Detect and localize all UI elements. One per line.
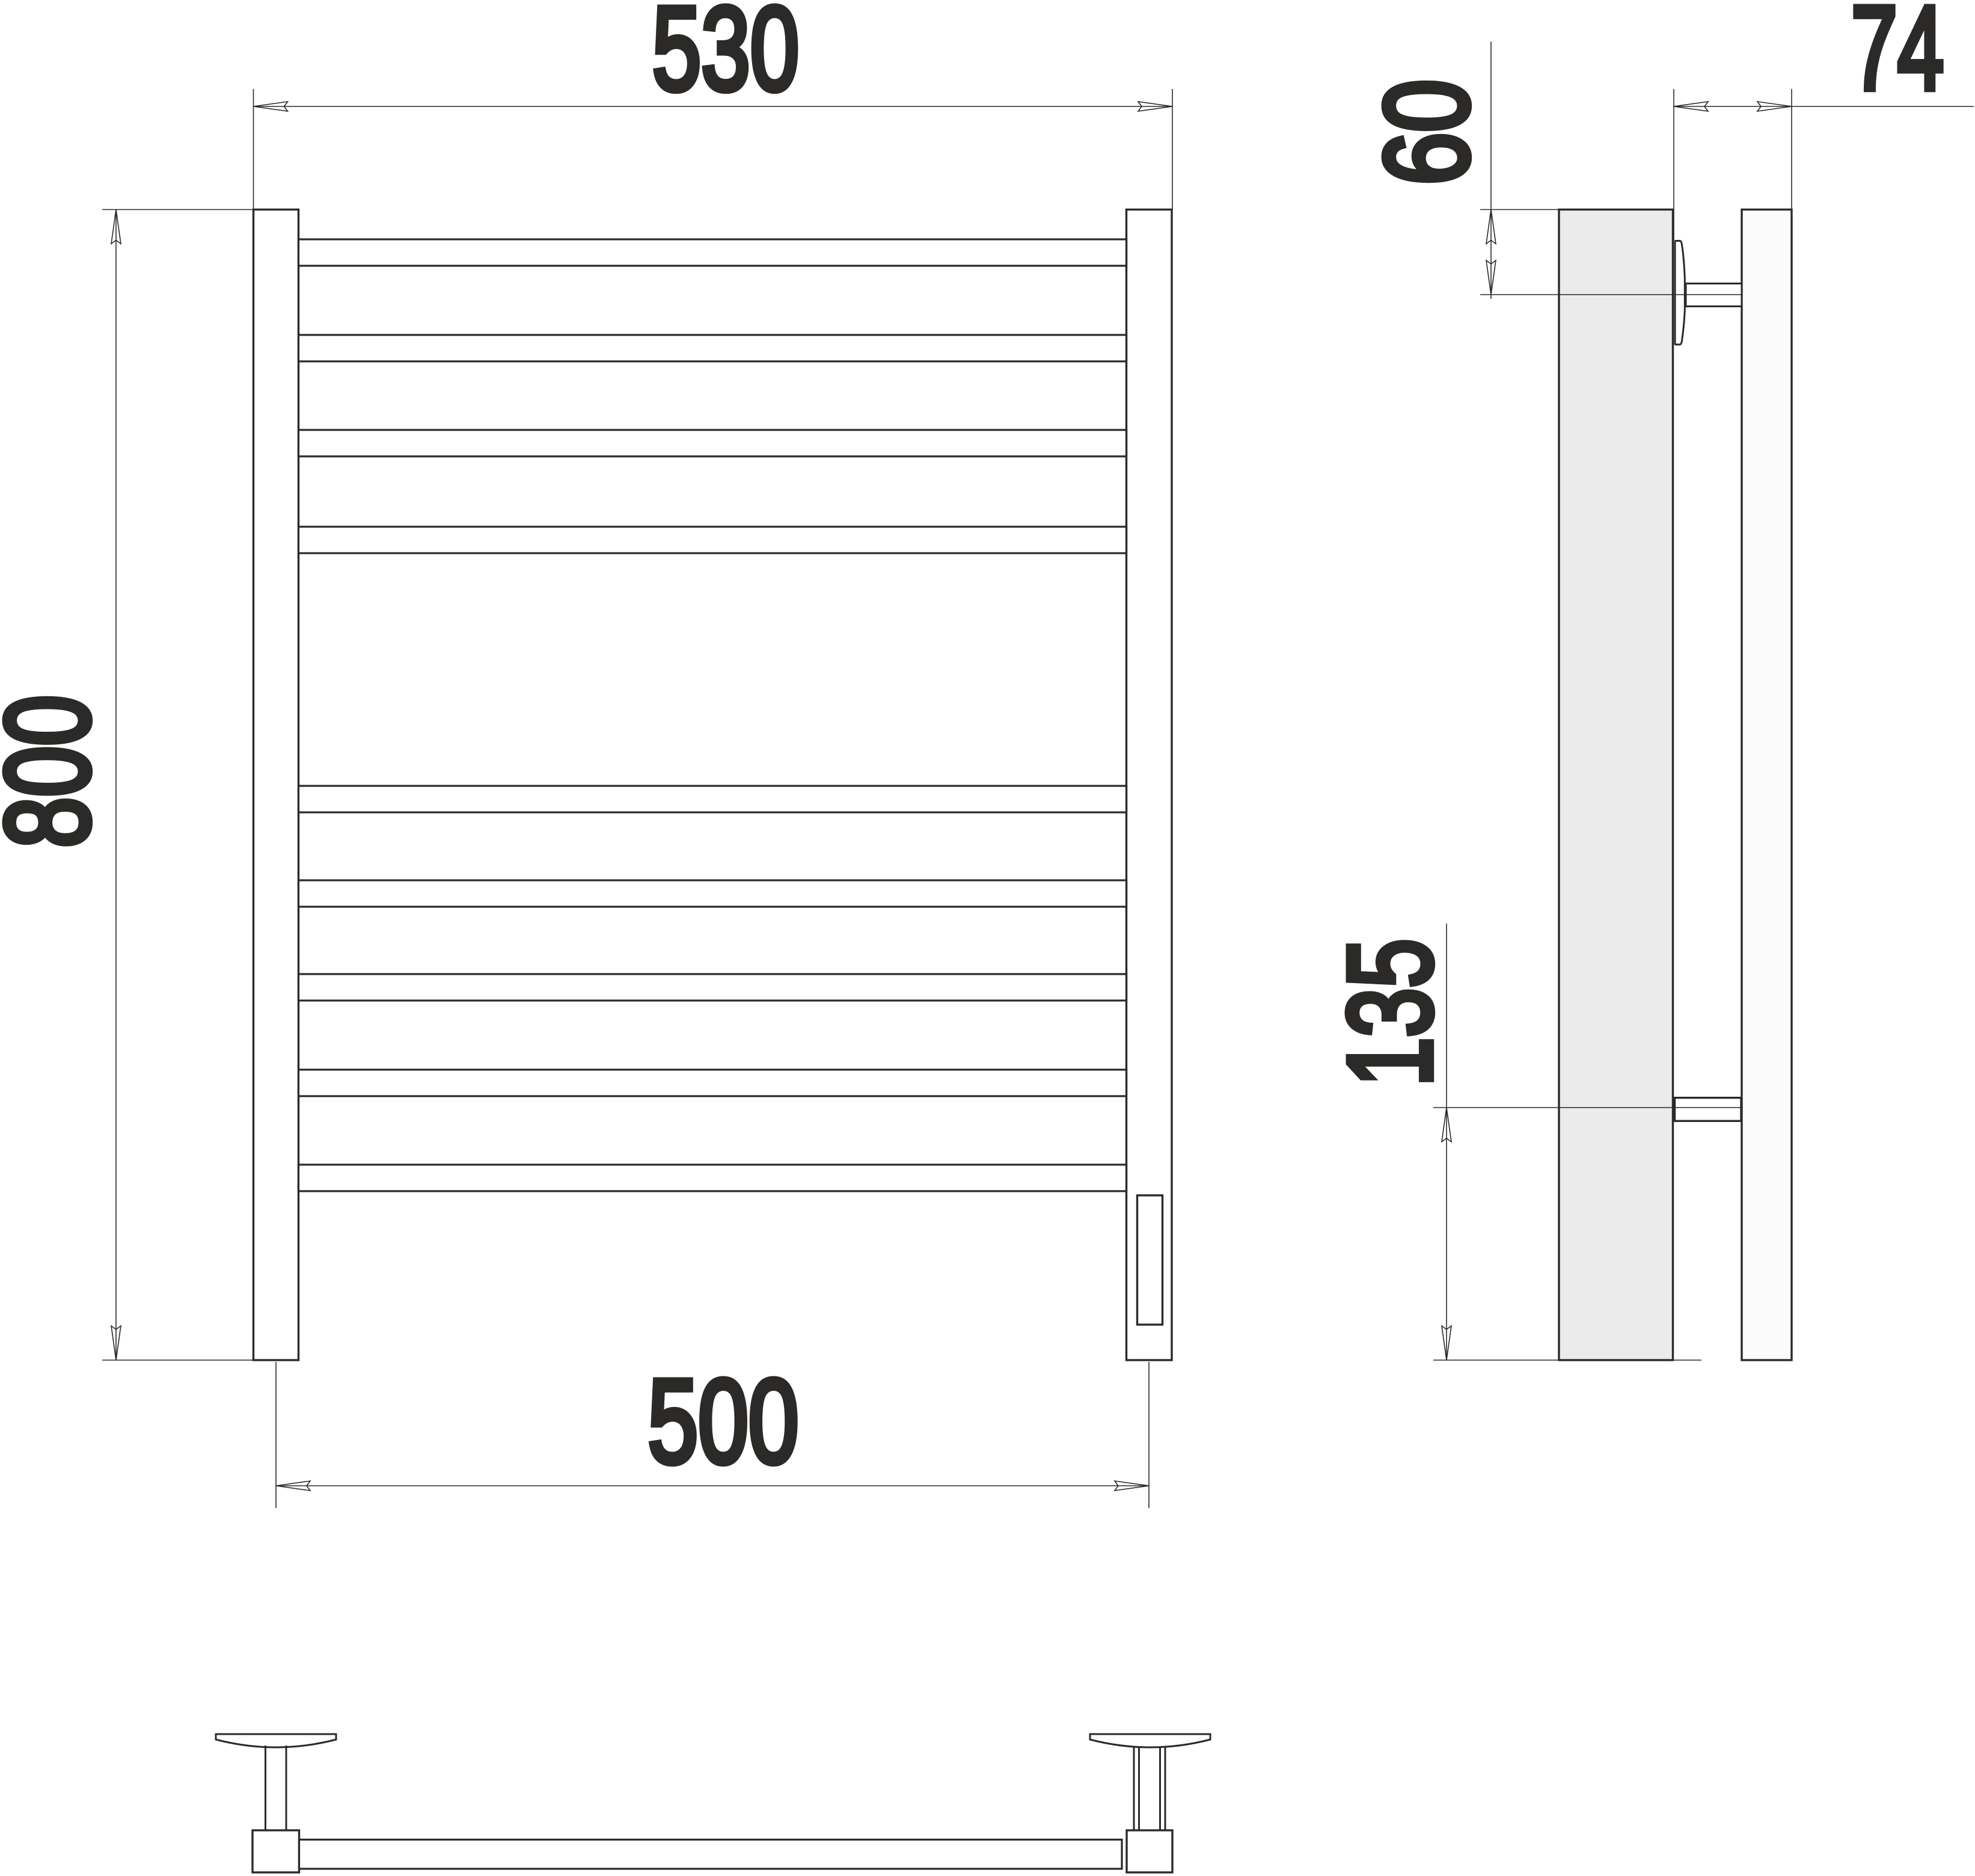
svg-text:135: 135 [1323,939,1456,1087]
svg-text:500: 500 [648,1355,798,1488]
svg-text:74: 74 [1851,0,1944,115]
svg-text:800: 800 [0,695,114,848]
svg-text:60: 60 [1360,79,1493,185]
svg-text:530: 530 [652,0,799,115]
